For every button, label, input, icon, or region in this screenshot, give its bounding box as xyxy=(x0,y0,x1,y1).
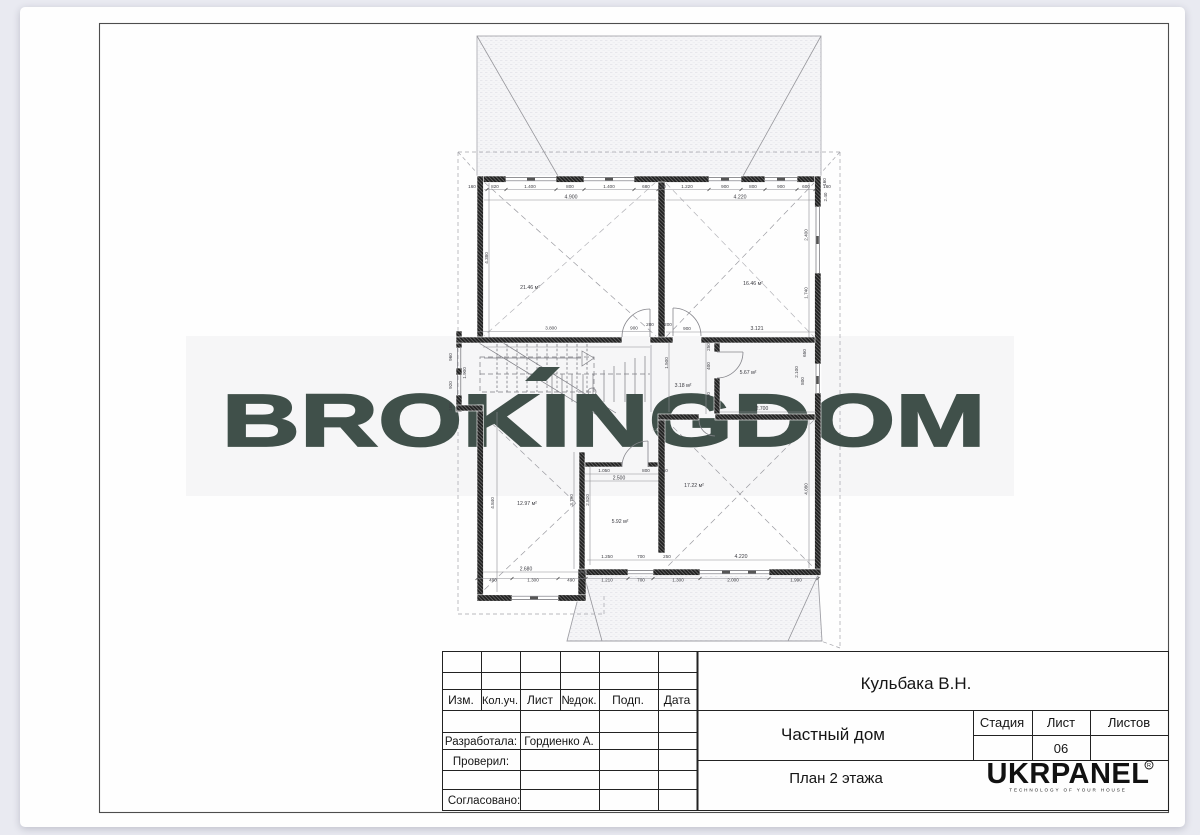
svg-text:920: 920 xyxy=(448,381,453,389)
svg-text:12.97 м²: 12.97 м² xyxy=(517,501,537,507)
svg-text:4.220: 4.220 xyxy=(735,554,748,560)
svg-text:250: 250 xyxy=(660,468,668,473)
svg-text:800: 800 xyxy=(566,184,574,189)
svg-text:4.080: 4.080 xyxy=(804,483,809,495)
svg-text:4.840: 4.840 xyxy=(490,497,495,509)
svg-text:21.46 м²: 21.46 м² xyxy=(520,285,540,291)
svg-text:820: 820 xyxy=(491,184,499,189)
svg-text:№док.: №док. xyxy=(561,693,596,707)
svg-text:Лист: Лист xyxy=(527,693,554,707)
svg-text:800: 800 xyxy=(642,468,650,473)
svg-text:06: 06 xyxy=(1054,741,1068,756)
svg-text:160: 160 xyxy=(658,184,666,189)
svg-text:3.121: 3.121 xyxy=(751,326,764,332)
svg-text:700: 700 xyxy=(637,578,645,583)
svg-text:2.500: 2.500 xyxy=(613,476,626,482)
svg-text:490: 490 xyxy=(489,578,497,583)
svg-text:Лист: Лист xyxy=(1047,715,1075,730)
svg-text:1.990: 1.990 xyxy=(790,578,802,583)
svg-text:1.300: 1.300 xyxy=(527,578,539,583)
svg-text:Кульбака В.Н.: Кульбака В.Н. xyxy=(861,674,972,693)
svg-text:900: 900 xyxy=(630,326,638,331)
svg-text:TECHNOLOGY OF YOUR HOUSE: TECHNOLOGY OF YOUR HOUSE xyxy=(1009,788,1126,793)
svg-text:400: 400 xyxy=(706,362,711,370)
svg-text:650: 650 xyxy=(706,392,711,400)
svg-text:2.680: 2.680 xyxy=(520,567,533,573)
svg-text:1.400: 1.400 xyxy=(603,184,615,189)
svg-text:2.40: 2.40 xyxy=(823,192,828,201)
svg-text:Дата: Дата xyxy=(664,693,691,707)
svg-text:160: 160 xyxy=(468,184,476,189)
svg-text:2.100: 2.100 xyxy=(794,366,799,378)
svg-text:3.18 м²: 3.18 м² xyxy=(675,383,692,389)
svg-text:Листов: Листов xyxy=(1108,715,1150,730)
svg-text:160: 160 xyxy=(448,403,453,411)
svg-text:5.92 м²: 5.92 м² xyxy=(612,519,629,525)
svg-text:16.46 м²: 16.46 м² xyxy=(743,281,763,287)
svg-text:650: 650 xyxy=(802,349,807,357)
svg-text:1.210: 1.210 xyxy=(601,578,613,583)
svg-text:2.700: 2.700 xyxy=(756,406,769,412)
svg-text:1.900: 1.900 xyxy=(462,367,467,379)
svg-text:200: 200 xyxy=(646,322,654,327)
svg-text:Изм.: Изм. xyxy=(448,693,474,707)
svg-text:1.400: 1.400 xyxy=(524,184,536,189)
svg-text:BROKINGDOM: BROKINGDOM xyxy=(222,379,986,462)
svg-text:2.000: 2.000 xyxy=(727,578,739,583)
svg-text:Стадия: Стадия xyxy=(980,715,1024,730)
svg-text:5.67 м²: 5.67 м² xyxy=(740,370,757,376)
svg-text:960: 960 xyxy=(448,353,453,361)
svg-text:1.220: 1.220 xyxy=(681,184,693,189)
svg-text:1.050: 1.050 xyxy=(598,468,610,473)
svg-text:4.900: 4.900 xyxy=(565,195,578,201)
svg-text:Гордиенко А.: Гордиенко А. xyxy=(524,736,593,748)
svg-text:700: 700 xyxy=(637,554,645,559)
svg-text:680: 680 xyxy=(642,184,650,189)
svg-text:1.300: 1.300 xyxy=(672,578,684,583)
svg-text:900: 900 xyxy=(683,326,691,331)
svg-text:800: 800 xyxy=(749,184,757,189)
svg-text:900: 900 xyxy=(777,184,785,189)
svg-text:Частный дом: Частный дом xyxy=(781,725,885,744)
svg-text:1.500: 1.500 xyxy=(664,357,669,369)
svg-text:4.380: 4.380 xyxy=(484,252,489,264)
svg-text:Подп.: Подп. xyxy=(612,693,644,707)
svg-text:UKRPANEL: UKRPANEL xyxy=(987,758,1150,790)
svg-text:Разработала:: Разработала: xyxy=(445,736,517,748)
svg-text:1.4: 1.4 xyxy=(652,427,659,432)
svg-text:План 2 этажа: План 2 этажа xyxy=(789,770,883,787)
svg-text:2.400: 2.400 xyxy=(804,229,809,241)
svg-text:Согласовано:: Согласовано: xyxy=(448,795,520,807)
svg-text:250: 250 xyxy=(663,554,671,559)
svg-text:3.790: 3.790 xyxy=(569,494,574,506)
svg-text:1.740: 1.740 xyxy=(804,287,809,299)
svg-text:3.800: 3.800 xyxy=(545,326,557,331)
svg-text:2.820: 2.820 xyxy=(585,494,590,506)
svg-text:R: R xyxy=(1147,763,1151,769)
svg-text:250: 250 xyxy=(706,343,711,351)
svg-text:Проверил:: Проверил: xyxy=(453,756,509,768)
svg-text:1.250: 1.250 xyxy=(601,554,613,559)
svg-text:200: 200 xyxy=(664,322,672,327)
svg-text:160: 160 xyxy=(822,178,827,186)
svg-text:490: 490 xyxy=(567,578,575,583)
svg-text:800: 800 xyxy=(800,377,805,385)
svg-text:Кол.уч.: Кол.уч. xyxy=(482,695,518,707)
svg-text:17.22 м²: 17.22 м² xyxy=(684,483,704,489)
svg-text:600: 600 xyxy=(802,184,810,189)
svg-text:900: 900 xyxy=(721,184,729,189)
svg-text:4.220: 4.220 xyxy=(734,195,747,201)
